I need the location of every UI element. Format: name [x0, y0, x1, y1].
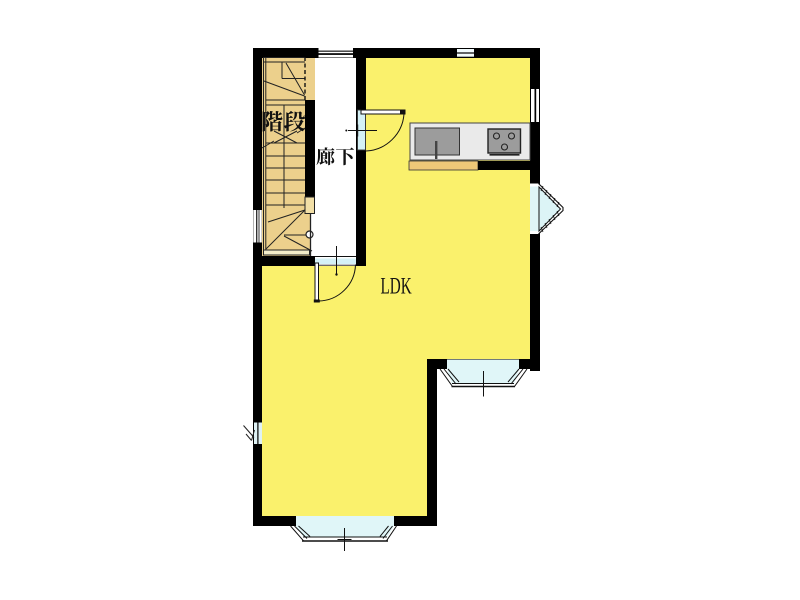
svg-text:LDK: LDK	[381, 275, 412, 300]
